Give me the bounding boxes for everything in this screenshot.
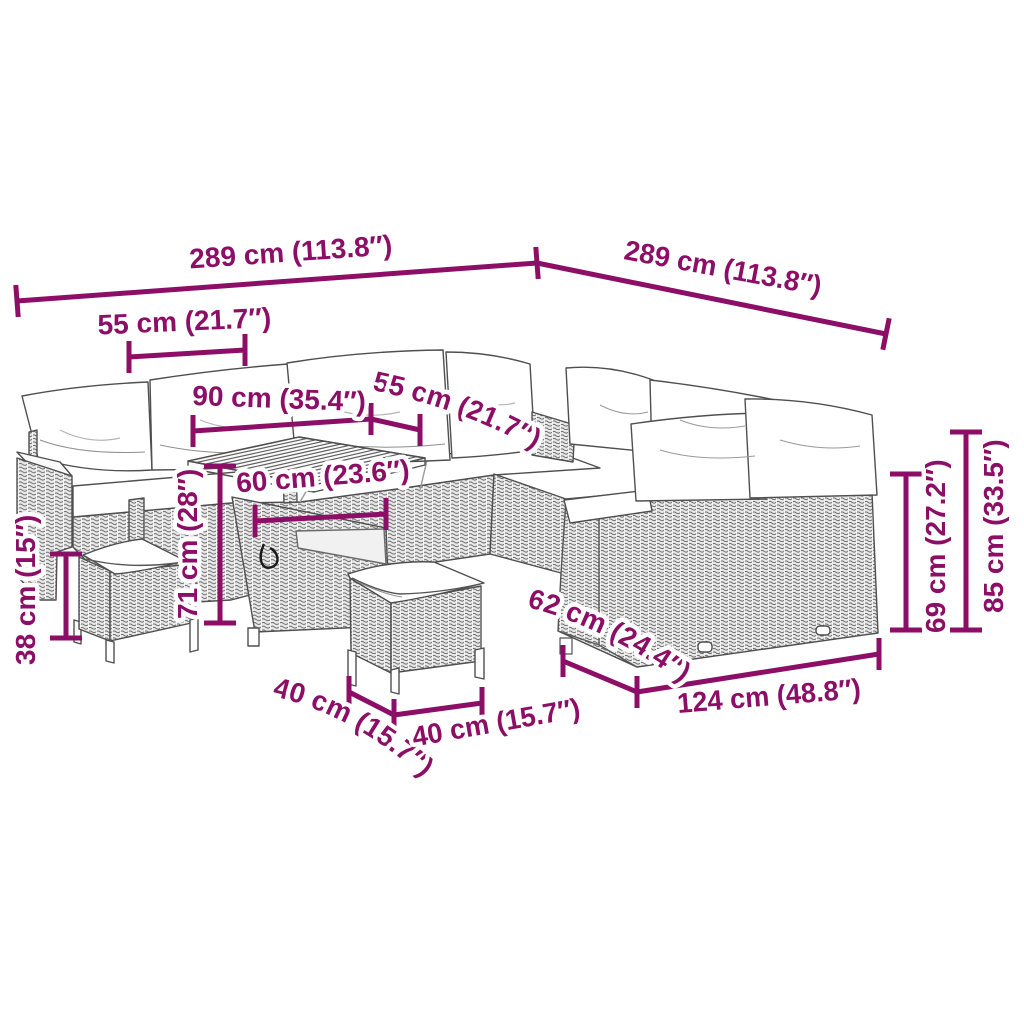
svg-text:69 cm (27.2″): 69 cm (27.2″) — [920, 459, 951, 633]
svg-text:38 cm (15″): 38 cm (15″) — [10, 515, 41, 665]
svg-text:85 cm (33.5″): 85 cm (33.5″) — [978, 439, 1009, 613]
svg-text:71 cm (28″): 71 cm (28″) — [172, 469, 203, 619]
svg-text:90 cm (35.4″): 90 cm (35.4″) — [192, 380, 367, 417]
